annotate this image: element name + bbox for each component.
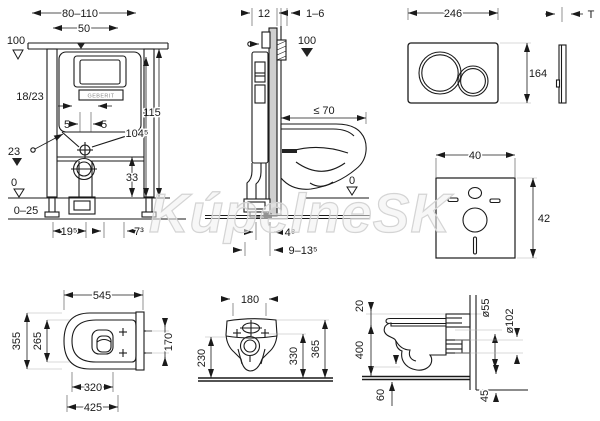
dim-height-bottom: 230 bbox=[196, 349, 208, 367]
brand-logo: GEBERIT bbox=[88, 94, 115, 100]
dim-seat-width: 265 bbox=[32, 332, 44, 350]
panel-wc-rear: 180 230 330 365 bbox=[196, 294, 333, 381]
panel-flush-plate: 246 164 T bbox=[408, 7, 595, 103]
level-triangle-open bbox=[13, 50, 23, 59]
watermark: KúpelneSK bbox=[149, 182, 455, 244]
flush-plate-side bbox=[559, 45, 566, 103]
dim-height-mid: 330 bbox=[288, 347, 300, 365]
dim-offset-left: 5 bbox=[64, 119, 70, 131]
dim-offset-right: 5 bbox=[101, 119, 107, 131]
panel-insulation-mat: 40 42 bbox=[436, 150, 550, 258]
panel-wc-side: 20 400 60 ø55 ø102 45 bbox=[354, 295, 528, 406]
dim-mount-height: 400 bbox=[354, 341, 366, 359]
dim-wall-width: 80–110 bbox=[62, 8, 98, 20]
wc-body-side bbox=[384, 323, 446, 370]
dim-outlet-diameter: ø102 bbox=[504, 308, 516, 333]
dim-wc-depth: 545 bbox=[93, 290, 111, 302]
inlet-stub bbox=[446, 314, 470, 327]
dim-drain-height: 33 bbox=[126, 172, 138, 184]
dim-plate-width: 246 bbox=[444, 8, 462, 20]
dim-level-23: 23 bbox=[8, 146, 20, 158]
dim-mat-width: 40 bbox=[469, 150, 481, 162]
dim-right-offset: 7³ bbox=[134, 226, 144, 238]
dim-height-top: 365 bbox=[310, 340, 322, 358]
dim-cistern-top-height: 104⁵ bbox=[126, 128, 149, 140]
level-triangle-filled bbox=[301, 48, 313, 57]
dim-inner-length: 320 bbox=[84, 382, 102, 394]
dim-cistern-width: 50 bbox=[78, 23, 90, 35]
technical-drawing: 80–110 50 100 GEBERIT 18/23 5 5 bbox=[0, 0, 600, 421]
dim-fixing-distance: 170 bbox=[163, 333, 175, 351]
frame-rail-right bbox=[144, 49, 154, 197]
dim-plate-height: 164 bbox=[529, 68, 547, 80]
dim-floor-range: 0–25 bbox=[14, 205, 38, 217]
dim-meter-mark: 100 bbox=[7, 35, 25, 47]
outlet-stub bbox=[446, 340, 470, 353]
dim-inlet-diameter: ø55 bbox=[480, 299, 492, 318]
dim-meter-mark-side: 100 bbox=[298, 35, 316, 47]
dim-panel-thickness: 1–6 bbox=[306, 8, 324, 20]
mounting-plate bbox=[136, 312, 144, 370]
dim-fixing-width: 180 bbox=[241, 294, 259, 306]
dim-zero: 0 bbox=[11, 177, 17, 189]
cistern-profile bbox=[252, 52, 268, 163]
dim-frame-depth: 12 bbox=[258, 8, 270, 20]
panel-wc-top: 545 355 265 320 425 170 bbox=[11, 290, 175, 414]
dim-mat-height: 42 bbox=[538, 213, 550, 225]
frame-rail-left bbox=[47, 49, 57, 197]
dim-left-offset: 19⁵ bbox=[61, 226, 78, 238]
dim-wc-width: 355 bbox=[11, 332, 23, 350]
dim-seat-offset: 20 bbox=[354, 300, 366, 312]
drawing-canvas: 80–110 50 100 GEBERIT 18/23 5 5 bbox=[0, 0, 600, 421]
dim-fill-level: 18/23 bbox=[16, 91, 44, 103]
level-triangle-filled bbox=[12, 158, 22, 166]
dim-bowl-depth: ≤ 70 bbox=[313, 105, 334, 117]
dim-drain-offset: 9–13⁵ bbox=[288, 245, 317, 257]
wc-body-top bbox=[64, 313, 136, 369]
dim-ledge: 45 bbox=[479, 390, 491, 402]
center-mark bbox=[77, 43, 85, 49]
dim-plate-thickness: T bbox=[588, 9, 595, 21]
dim-floor-depth: 60 bbox=[375, 389, 387, 401]
dim-total-length: 425 bbox=[84, 402, 102, 414]
